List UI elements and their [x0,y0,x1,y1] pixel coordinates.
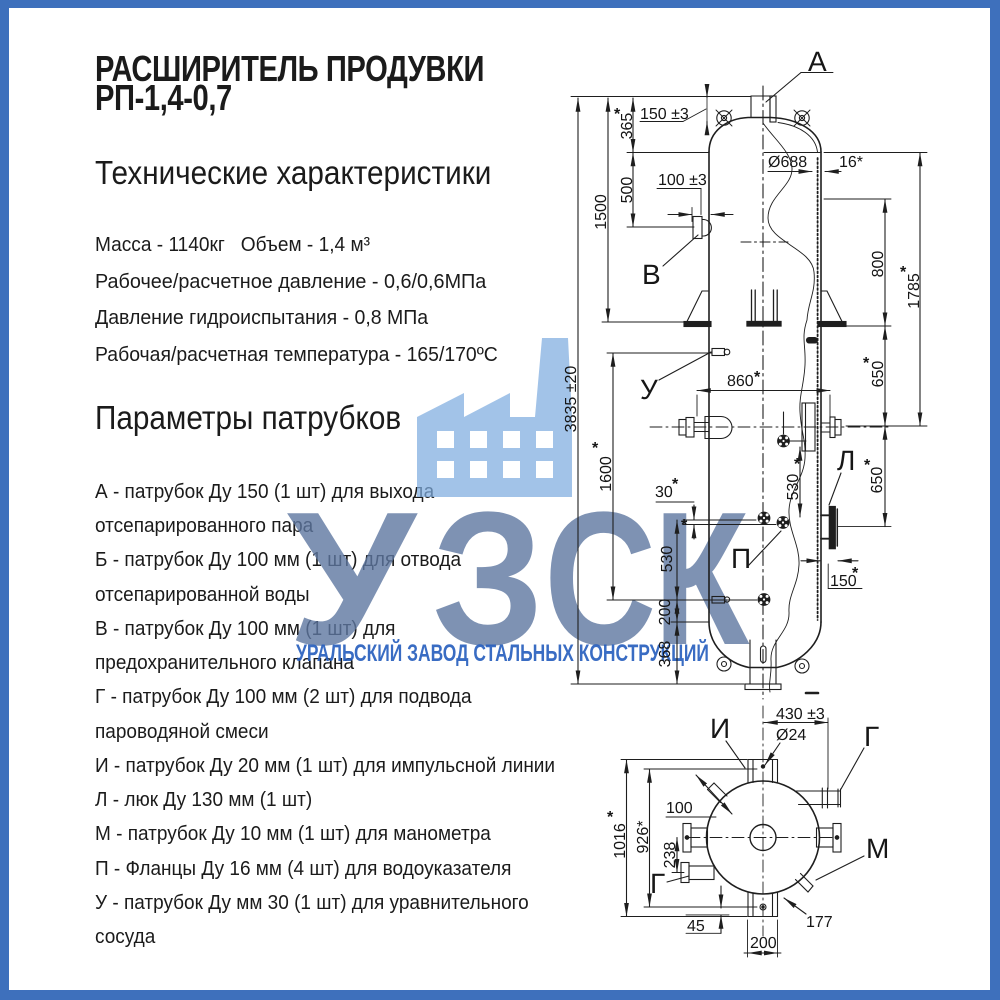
svg-text:500: 500 [619,177,636,204]
svg-text:*: * [863,355,870,372]
svg-text:3835 ±20: 3835 ±20 [563,366,580,433]
svg-text:365: 365 [619,113,636,140]
svg-text:530: 530 [785,474,802,501]
svg-text:Г: Г [650,868,665,899]
svg-text:*: * [592,440,599,457]
svg-text:1785: 1785 [906,273,923,309]
svg-text:200: 200 [750,935,777,952]
svg-text:530: 530 [659,546,676,573]
svg-text:Л: Л [837,445,855,476]
svg-text:100: 100 [666,800,693,817]
svg-text:*: * [672,476,679,493]
svg-text:Ø24: Ø24 [776,727,806,744]
svg-text:М: М [866,833,889,864]
svg-text:*: * [614,106,621,123]
svg-text:800: 800 [870,251,887,278]
svg-text:150 ±3: 150 ±3 [640,106,689,123]
svg-text:В: В [642,259,661,290]
svg-text:И: И [710,713,730,744]
svg-text:860: 860 [727,373,754,390]
svg-text:*: * [607,809,614,826]
svg-text:У: У [640,374,658,405]
svg-text:*: * [852,565,859,582]
svg-text:368: 368 [657,641,674,668]
svg-text:926*: 926* [635,821,652,854]
svg-text:650: 650 [869,467,886,494]
svg-text:238: 238 [662,842,679,869]
svg-text:16*: 16* [839,154,863,171]
svg-text:1600: 1600 [598,456,615,492]
svg-text:1016: 1016 [612,823,629,859]
svg-text:Г: Г [864,721,879,752]
svg-text:430 ±3: 430 ±3 [776,706,825,723]
svg-text:Ø688: Ø688 [768,154,807,171]
svg-text:200: 200 [657,599,674,626]
svg-text:*: * [754,369,761,386]
svg-text:*: * [864,457,871,474]
svg-text:1500: 1500 [593,194,610,230]
svg-text:*: * [681,517,688,534]
svg-text:650: 650 [870,361,887,388]
svg-text:30: 30 [655,484,673,501]
svg-text:100 ±3: 100 ±3 [658,172,707,189]
svg-text:П: П [731,543,751,574]
svg-text:45: 45 [687,918,705,935]
svg-text:177: 177 [806,914,833,931]
svg-text:*: * [794,456,801,473]
svg-text:*: * [900,264,907,281]
